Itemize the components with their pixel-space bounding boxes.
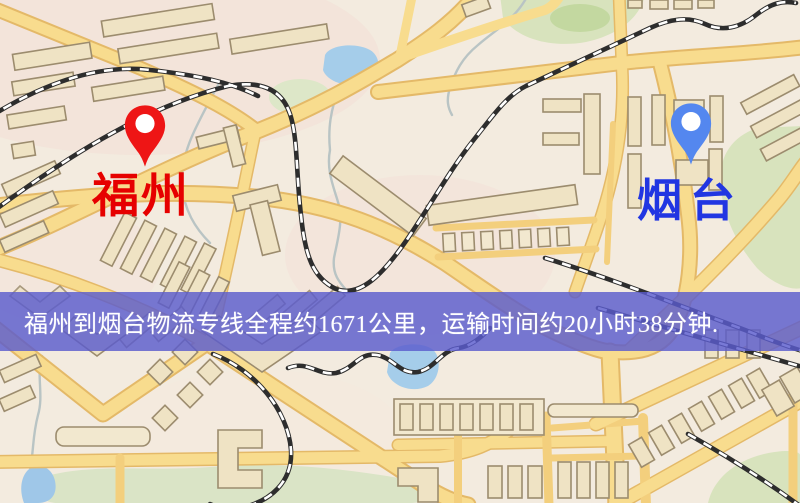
info-banner: 福州到烟台物流专线全程约1671公里，运输时间约20小时38分钟.: [0, 292, 800, 351]
banner-text: 福州到烟台物流专线全程约1671公里，运输时间约20小时38分钟.: [0, 304, 719, 339]
fuzhou-pin-icon[interactable]: [122, 103, 168, 169]
city-label-yantai: 烟台: [637, 179, 743, 224]
city-label-fuzhou: 福州: [92, 174, 190, 221]
map-screenshot: 福州 烟台 福州到烟台物流专线全程约1671公里，运输时间约20小时38分钟.: [0, 0, 800, 503]
yantai-pin-icon[interactable]: [668, 101, 714, 167]
map-canvas[interactable]: [0, 0, 800, 503]
